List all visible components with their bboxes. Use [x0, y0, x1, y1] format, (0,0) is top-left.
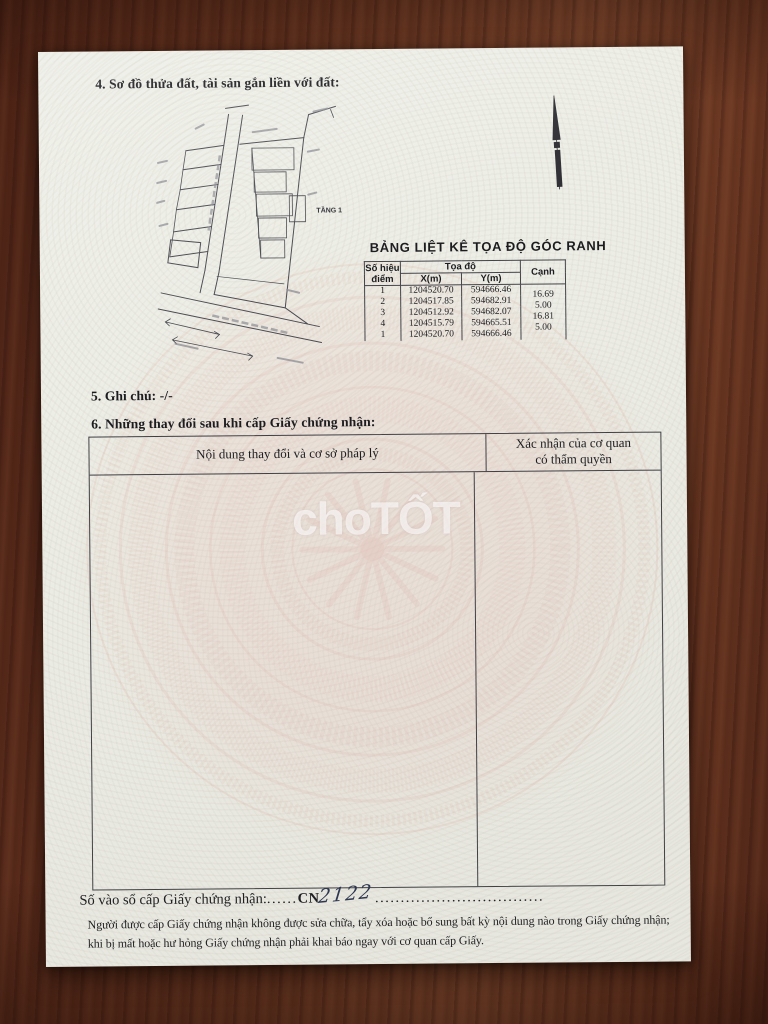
registry-label: Số vào sổ cấp Giấy chứng nhận:: [79, 891, 267, 909]
confirm-cell-empty: [475, 470, 665, 886]
coord-table-title: BẢNG LIỆT KÊ TỌA ĐỘ GÓC RANH: [370, 238, 607, 255]
table-row: 1 1204520.70 594666.46 16.69 5.00 16.81 …: [365, 284, 566, 297]
north-arrow-icon: [541, 93, 573, 194]
col-y-header: Y(m): [461, 272, 520, 285]
edge-values-column: 16.69 5.00 16.81 5.00: [521, 284, 566, 340]
col-content-header: Nội dung thay đổi và cơ sở pháp lý: [89, 434, 486, 474]
dot-leader: ......: [267, 891, 298, 907]
edge-value: 16.69: [521, 289, 565, 300]
dot-leader: .................................: [375, 889, 544, 906]
edge-value: 5.00: [521, 300, 565, 311]
col-point-header: Số hiệu điểm: [364, 261, 400, 285]
edge-value: 16.81: [521, 311, 565, 322]
chotot-watermark: choTỐT: [292, 490, 460, 545]
edge-value: 5.00: [521, 322, 565, 333]
registry-line: Số vào sổ cấp Giấy chứng nhận:......CN21…: [79, 884, 544, 910]
col-coord-group-header: Tọa độ: [400, 260, 520, 273]
registry-number-handwritten: 2122: [317, 881, 374, 909]
col-x-header: X(m): [400, 273, 461, 286]
section4-heading: 4. Sơ đồ thửa đất, tài sản gắn liền với …: [95, 74, 339, 92]
registry-prefix: CN: [298, 891, 320, 907]
coordinate-table: Số hiệu điểm Tọa độ Cạnh X(m) Y(m) 1 120…: [364, 259, 567, 341]
changes-table-header: Nội dung thay đổi và cơ sở pháp lý Xác n…: [89, 433, 660, 475]
road-name-labels: [208, 155, 288, 334]
wooden-table-background: 4. Sơ đồ thửa đất, tài sản gắn liền với …: [0, 0, 768, 1024]
certificate-page: 4. Sơ đồ thửa đất, tài sản gắn liền với …: [38, 46, 691, 967]
footer-note: Người được cấp Giấy chứng nhận không đượ…: [88, 911, 670, 953]
floor-label: TẦNG 1: [316, 204, 342, 214]
section6-heading: 6. Những thay đổi sau khi cấp Giấy chứng…: [91, 414, 375, 432]
col-confirm-header: Xác nhận của cơ quan có thẩm quyền: [486, 433, 660, 471]
section5-heading: 5. Ghi chú: -/-: [91, 388, 173, 405]
col-edge-header: Cạnh: [520, 260, 565, 284]
